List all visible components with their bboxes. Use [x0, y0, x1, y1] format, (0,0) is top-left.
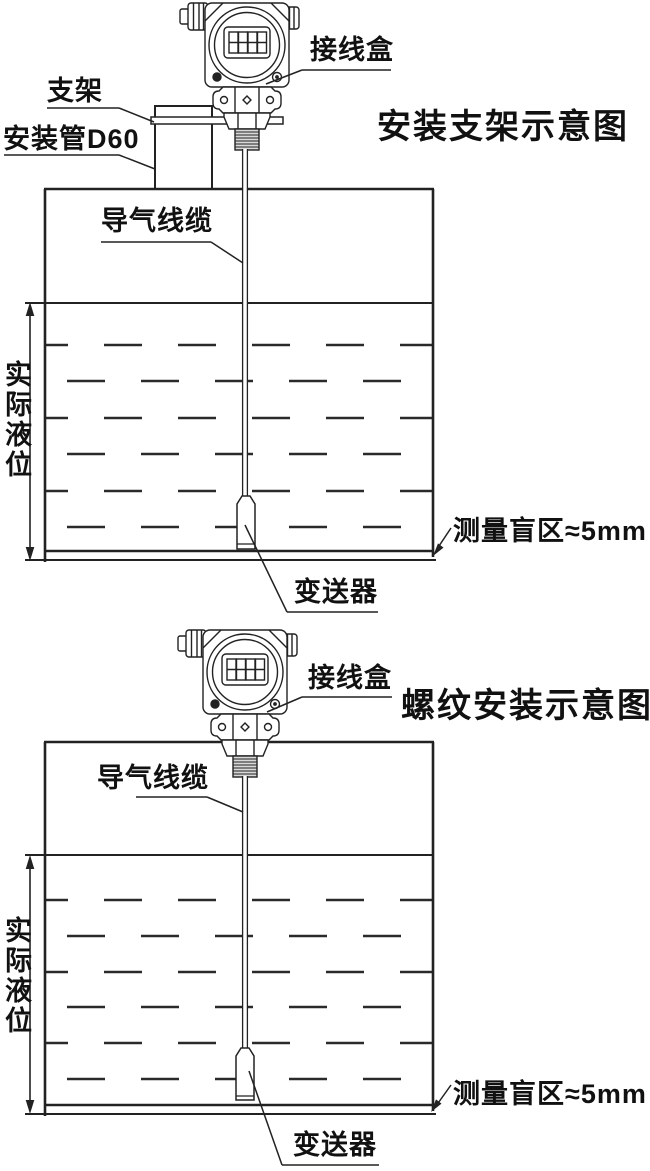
submersible-probe-bottom: [236, 1048, 254, 1100]
blind-zone-label-top: 测量盲区≈5mm: [453, 517, 647, 547]
air-cable-label-top: 导气线缆: [101, 207, 213, 237]
tank-bottom: [25, 742, 436, 1116]
tank-top: [25, 189, 436, 562]
transmitter-head-bottom: [178, 630, 297, 777]
transmitter-label-top: 变送器: [294, 578, 378, 608]
actual-level-label-top: 实际液位: [2, 360, 29, 480]
mounting-pipe-label: 安装管D60: [3, 125, 140, 155]
air-guide-cable-top: [243, 149, 248, 497]
air-cable-leader-bottom: [136, 797, 243, 812]
blind-zone-arrow-top: [433, 528, 451, 556]
air-cable-leader: [101, 242, 243, 263]
air-cable-label-bottom: 导气线缆: [97, 764, 209, 794]
junction-box-label-bottom: 接线盒: [308, 664, 392, 694]
diagram-title-top: 安装支架示意图: [377, 109, 629, 146]
installation-diagram-page: 支架 安装管D60 接线盒 安装支架示意图 导气线缆 实际液位 测量盲区≈5mm…: [0, 0, 650, 1171]
transmitter-head-top: [180, 3, 299, 150]
junction-box-label-top: 接线盒: [310, 36, 394, 66]
diagram-title-bottom: 螺纹安装示意图: [401, 688, 650, 725]
bracket-label: 支架: [47, 77, 103, 107]
actual-level-label-bottom: 实际液位: [2, 916, 29, 1036]
mounting-pipe-leader: [4, 155, 155, 169]
air-guide-cable-bottom: [243, 776, 248, 1049]
bracket-leader: [47, 108, 154, 122]
blind-zone-label-bottom: 测量盲区≈5mm: [453, 1080, 647, 1110]
transmitter-label-bottom: 变送器: [293, 1131, 377, 1161]
